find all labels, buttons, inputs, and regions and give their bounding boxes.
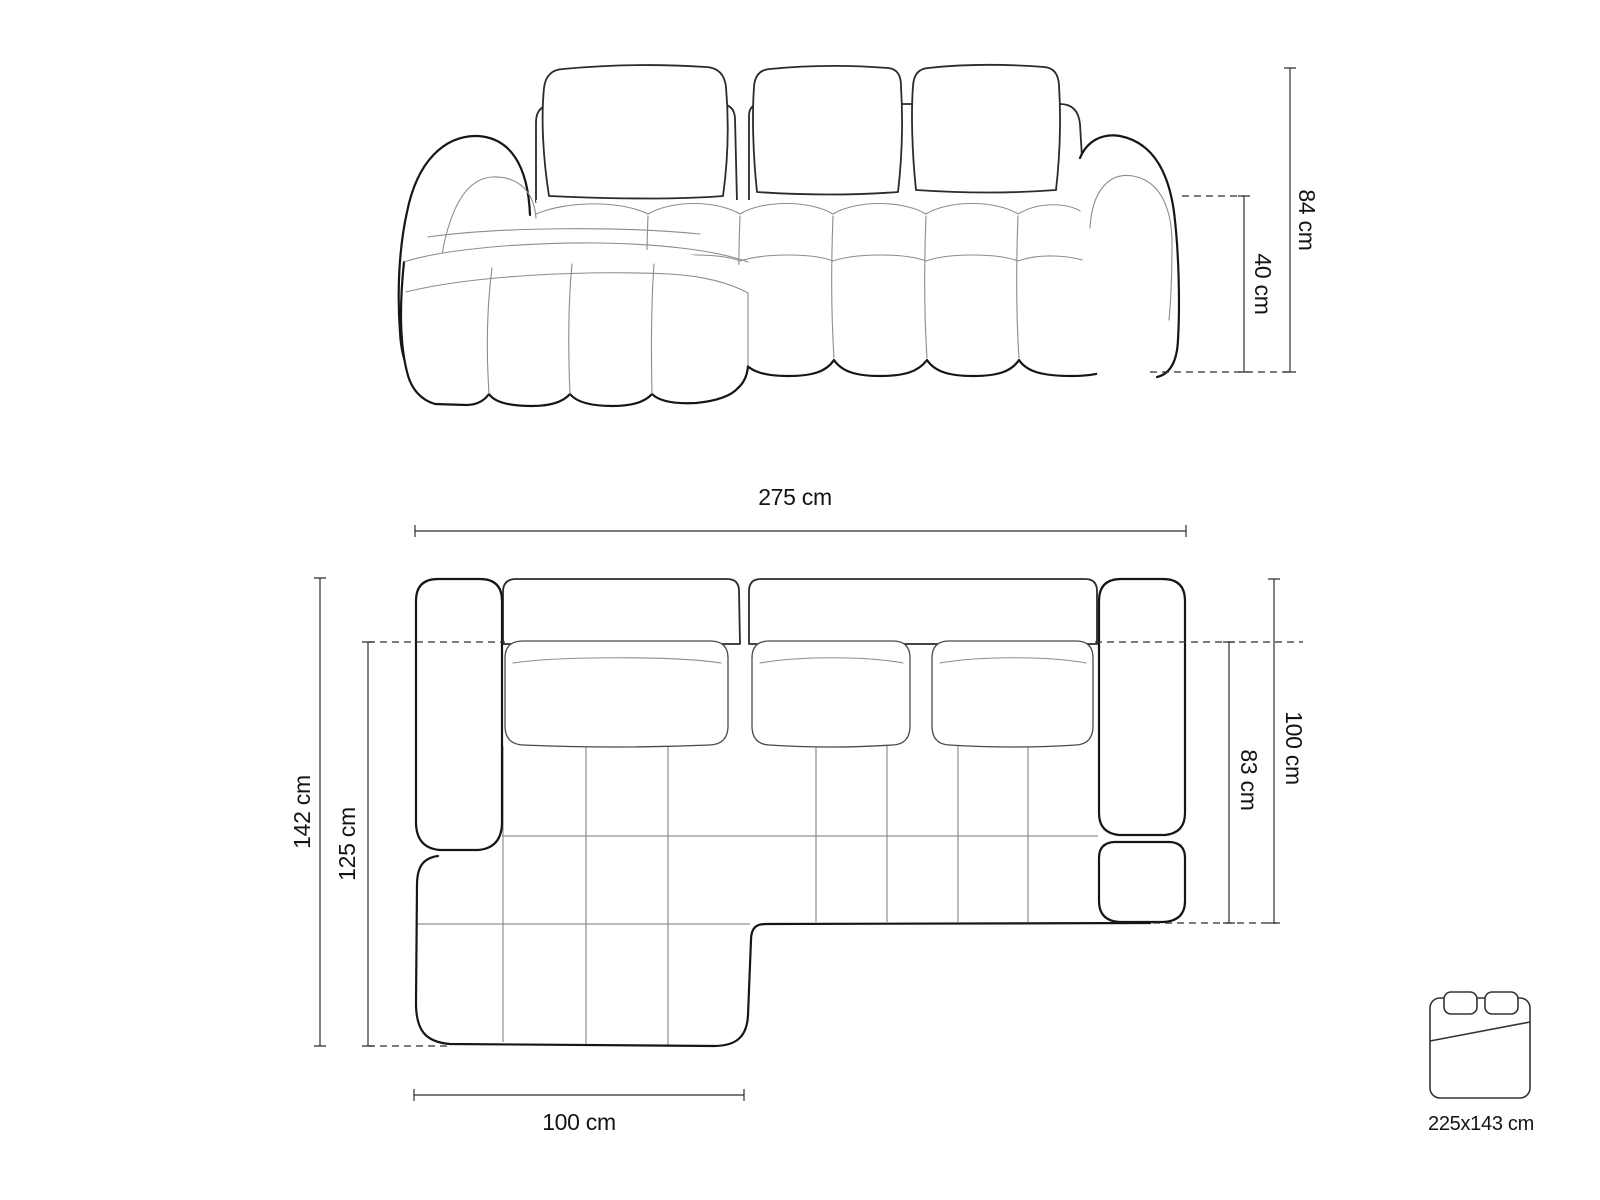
top-arm-left	[416, 579, 502, 850]
top-corner-piece	[1099, 842, 1185, 922]
dimension-label-100cm-right: 100 cm	[1281, 711, 1307, 785]
dimension-diagram: 84 cm 40 cm	[0, 0, 1600, 1200]
back-pillow-right	[912, 65, 1060, 193]
dimension-seat-height: 40 cm	[1238, 196, 1276, 372]
dimension-label-40cm: 40 cm	[1250, 253, 1276, 314]
sleeping-area: 225x143 cm	[1428, 992, 1534, 1135]
dimension-depth-total: 142 cm	[289, 578, 326, 1046]
top-arm-right	[1099, 579, 1185, 835]
sofa-top-view	[368, 579, 1303, 1046]
bed-icon	[1430, 992, 1530, 1098]
dimension-width-total: 275 cm	[415, 484, 1186, 537]
back-pillow-center	[753, 66, 902, 195]
top-back-cushions	[505, 641, 1093, 747]
sofa-front-view	[399, 65, 1290, 406]
top-backrest	[503, 579, 1097, 644]
back-pillow-left	[543, 65, 728, 199]
dimension-height-total: 84 cm	[1284, 68, 1320, 372]
front-arm-right	[1080, 135, 1179, 377]
dimension-label-100cm-bottom: 100 cm	[542, 1109, 616, 1135]
top-chaise-outline	[416, 856, 1150, 1046]
dimension-label-275cm: 275 cm	[758, 484, 832, 510]
sleeping-area-label: 225x143 cm	[1428, 1113, 1534, 1135]
dimension-label-142cm: 142 cm	[289, 775, 315, 849]
dimension-label-125cm: 125 cm	[334, 807, 360, 881]
dimension-chaise-depth-inner: 125 cm	[334, 642, 374, 1046]
dimension-depth-inner: 83 cm	[1223, 642, 1262, 923]
dimension-depth-main: 100 cm	[1268, 579, 1307, 923]
diagram-canvas: 84 cm 40 cm	[0, 0, 1600, 1200]
seat-quilt-grid	[417, 746, 1098, 1045]
dimension-chaise-width: 100 cm	[414, 1089, 744, 1135]
dimension-label-84cm: 84 cm	[1294, 189, 1320, 250]
dimension-label-83cm: 83 cm	[1236, 749, 1262, 810]
